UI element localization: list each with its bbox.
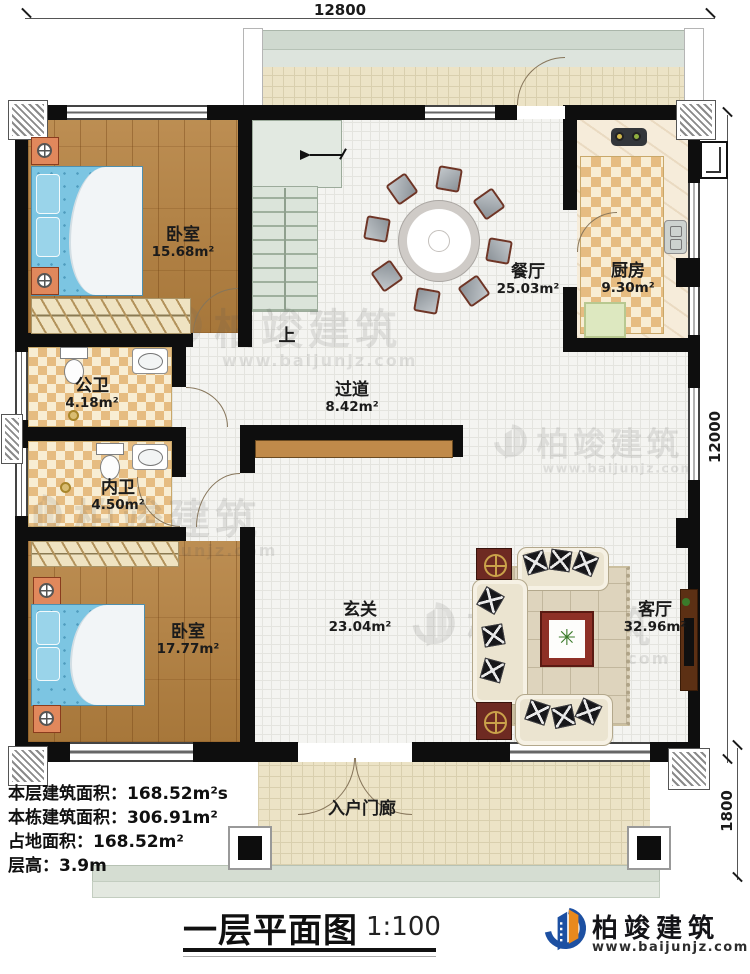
room-label-kitchen: 厨房9.30m² xyxy=(578,261,678,296)
info-total-area: 本栋建筑面积：306.91m² xyxy=(8,806,228,830)
corner-column xyxy=(676,100,716,140)
sofa-pillow xyxy=(481,623,505,647)
room-label-dining: 餐厅25.03m² xyxy=(478,262,578,297)
wall xyxy=(193,742,298,762)
porch-step xyxy=(92,881,660,898)
drawing-title: 一层平面图 xyxy=(183,903,358,952)
kitchen-window-2 xyxy=(688,287,700,335)
porch-column-core xyxy=(238,836,262,860)
brand-url: www.baijunjz.com xyxy=(592,940,749,955)
lamp-icon xyxy=(39,711,54,726)
table-lamp-icon xyxy=(484,711,507,734)
toilet xyxy=(60,347,88,359)
porch-column xyxy=(627,826,671,870)
nightstand xyxy=(33,705,61,733)
stove-burner xyxy=(615,132,624,141)
wall xyxy=(238,105,252,347)
dining-right-window xyxy=(688,388,700,480)
stair-direction-line xyxy=(310,154,342,156)
wall xyxy=(240,527,255,744)
wall xyxy=(15,527,172,541)
wall-pier xyxy=(676,518,688,548)
room-label-inner-bath: 内卫4.50m² xyxy=(68,478,168,513)
wall xyxy=(412,742,510,762)
dimension-tick xyxy=(705,8,716,19)
bed-pillow xyxy=(36,217,60,257)
wall xyxy=(15,427,172,441)
sofa-pillow xyxy=(549,549,573,573)
flue-flap xyxy=(706,147,721,173)
terrace-step xyxy=(261,30,686,51)
info-floor-area: 本层建筑面积：168.52m²s xyxy=(8,782,228,806)
wall xyxy=(240,425,463,440)
dining-table-center xyxy=(428,230,450,252)
nightstand xyxy=(31,137,59,165)
dimension-label-top: 12800 xyxy=(300,1,380,19)
dimension-label-right: 12000 xyxy=(706,407,724,467)
room-label-foyer: 玄关23.04m² xyxy=(310,600,410,635)
table-lamp-icon xyxy=(484,554,507,577)
wall xyxy=(172,527,186,541)
bed-blanket xyxy=(70,605,144,705)
sink-bowl xyxy=(670,239,682,250)
porch-column-core xyxy=(637,836,661,860)
nightstand xyxy=(31,267,59,295)
wardrobe xyxy=(31,541,179,567)
wall xyxy=(563,105,577,210)
room-label-bedroom2: 卧室17.77m² xyxy=(138,622,238,657)
kitchen-sink xyxy=(664,220,687,254)
corner-column xyxy=(1,414,23,464)
bed-blanket xyxy=(69,167,142,295)
toilet-bowl xyxy=(100,455,120,480)
bedroom1-window xyxy=(67,105,207,120)
sink-basin xyxy=(138,353,163,370)
corner-column xyxy=(668,748,710,790)
dining-chair xyxy=(363,215,391,243)
dining-chair xyxy=(435,165,463,193)
title-underline xyxy=(183,948,436,952)
stove xyxy=(611,128,647,146)
wall xyxy=(563,338,700,352)
sink xyxy=(132,348,168,374)
toilet xyxy=(96,443,124,455)
sofa-pillow xyxy=(551,704,576,729)
room-label-bedroom1: 卧室15.68m² xyxy=(133,225,233,260)
wall xyxy=(172,347,186,387)
floor-drain-icon xyxy=(68,410,79,421)
lamp-icon xyxy=(39,583,54,598)
info-land-area: 占地面积：168.52m² xyxy=(8,830,228,854)
wall xyxy=(15,516,28,746)
sink-bowl xyxy=(670,226,682,237)
bed-pillow xyxy=(36,174,60,214)
dining-table xyxy=(398,200,480,282)
dining-window xyxy=(425,105,495,120)
corner-column xyxy=(8,746,48,786)
kitchen-counter-board xyxy=(584,302,626,338)
room-label-porch: 入户门廊 xyxy=(312,799,412,819)
wall xyxy=(495,105,517,120)
room-label-living: 客厅32.96m² xyxy=(605,600,705,635)
stair-rail xyxy=(284,188,286,310)
wall xyxy=(15,105,28,352)
sink xyxy=(132,444,168,470)
wall xyxy=(15,333,193,347)
terrace-step xyxy=(261,49,686,69)
dining-chair xyxy=(485,237,513,265)
hallway-cabinet xyxy=(255,440,453,458)
bed-pillow xyxy=(36,611,60,645)
stair-up-label: 上 xyxy=(272,326,302,346)
stove-burner xyxy=(632,132,641,141)
public-bath-window xyxy=(15,352,28,420)
bedroom2-window xyxy=(70,742,193,762)
lamp-icon xyxy=(37,143,52,158)
title-underline-thin xyxy=(183,956,436,957)
drawing-scale: 1:100 xyxy=(366,912,441,942)
coffee-table: ✳ xyxy=(540,611,594,667)
bed xyxy=(31,604,145,706)
sink-basin xyxy=(138,449,163,466)
room-label-public-bath: 公卫4.18m² xyxy=(42,376,142,411)
dining-chair xyxy=(413,287,441,315)
brand-logo-icon xyxy=(540,902,588,960)
wall xyxy=(172,427,186,477)
dimension-tick xyxy=(21,8,32,19)
side-table xyxy=(476,702,512,740)
terrace-door-opening xyxy=(517,106,565,119)
side-table xyxy=(476,548,512,580)
wall xyxy=(688,258,700,287)
info-block: 本层建筑面积：168.52m²s 本栋建筑面积：306.91m² 占地面积：16… xyxy=(8,782,228,878)
kitchen-window xyxy=(688,183,700,258)
dimension-line-right xyxy=(727,115,728,763)
info-floor-height: 层高：3.9m xyxy=(8,854,228,878)
lamp-icon xyxy=(37,273,52,288)
coffee-table-plant-icon: ✳ xyxy=(549,620,585,658)
bed-pillow xyxy=(36,647,60,681)
dimension-label-bottom-right: 1800 xyxy=(718,781,736,841)
kitchen-flue xyxy=(700,141,728,179)
porch-column xyxy=(228,826,272,870)
corner-column xyxy=(8,100,48,140)
dimension-line-bottom-right xyxy=(737,748,738,880)
nightstand xyxy=(33,577,61,605)
room-label-hallway: 过道8.42m² xyxy=(302,380,402,415)
floor-plan-canvas: 12800 12000 1800 柏竣建筑 www.baijunjz.com 柏… xyxy=(0,0,750,974)
wardrobe xyxy=(31,298,191,334)
